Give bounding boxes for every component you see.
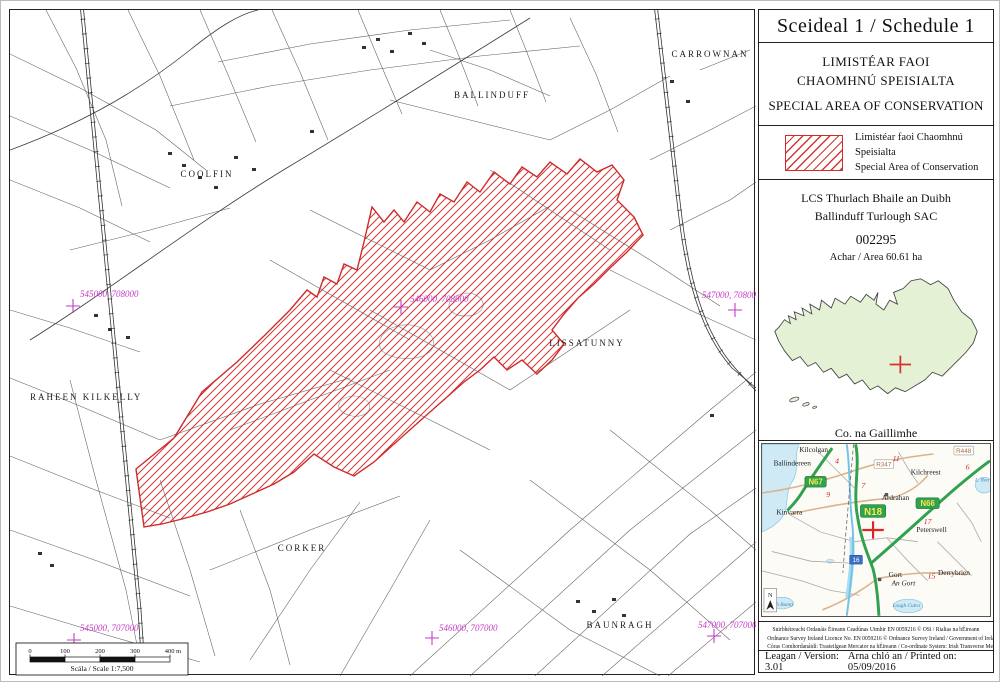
copyright-line-irish: Suirbhéireacht Ordanáis Éireann Ceadúnas… [767,626,985,635]
county-locator-map [767,271,986,422]
town-label: Peterswell [916,525,946,534]
designation-irish-line1: LIMISTÉAR FAOI [759,53,993,72]
site-section: LCS Thurlach Bhaile an Duibh Ballinduff … [758,179,994,441]
junction-16: 16 [853,557,861,564]
placename: BAUNRAGH [586,620,653,630]
town-label-gort: Gort [889,570,902,579]
inset-map-section: N67 N18 N66 R347 R448 16 4 9 7 [758,440,994,622]
coord-label: 546000, 708000 [410,294,469,304]
road-shield-n18: N18 [864,507,882,518]
railway-west [80,10,145,670]
designation-english: SPECIAL AREA OF CONSERVATION [759,98,993,114]
county-name-irish: Co. na Gaillimhe [759,424,993,441]
site-area: Achar / Area 60.61 ha [759,252,993,263]
placename: RAHEEN KILKELLY [30,392,142,402]
town-label: Kinvarra [776,507,803,516]
distance: 11 [893,454,900,463]
scale-tick: 100 [60,648,70,655]
map-sheet: COOLFIN BALLINDUFF CARROWNAN LISSATUNNY … [0,0,1000,682]
scale-tick: 200 [95,648,105,655]
galway-county-outline [774,279,976,394]
site-code: 002295 [759,232,993,248]
scale-tick: 300 [130,648,140,655]
distance: 6 [966,463,970,472]
designation-section: LIMISTÉAR FAOI CHAOMHNÚ SPEISIALTA SPECI… [758,42,994,126]
scale-tick: 400 m [165,648,181,655]
printed-label: Arna chló an / Printed on: 05/09/2016 [848,651,987,673]
coord-label: 546000, 707000 [439,623,498,633]
placename: LISSATUNNY [549,338,625,348]
distance: 7 [861,481,866,490]
town-label: Kilcolgan [799,445,828,454]
town-label-angort: An Gort [891,579,917,588]
main-map-panel: COOLFIN BALLINDUFF CARROWNAN LISSATUNNY … [9,9,755,675]
schedule-title: Sceideal 1 / Schedule 1 [777,15,975,38]
copyright-line-english: Ordnance Survey Ireland Licence No. EN 0… [767,635,985,644]
grid-cross [728,303,742,317]
legend-label-irish: Limistéar faoi Chaomhnú Speisialta [855,130,993,160]
scale-tick: 0 [28,648,31,655]
railway-east [654,10,756,391]
placename: CARROWNAN [671,49,748,59]
placename: COOLFIN [180,169,233,179]
water-label: Lough Cutra [891,603,920,609]
scale-bar: 0 100 200 300 400 m Scála / Scale 1:7,50… [16,643,188,675]
town-label: Derrybrien [938,568,970,577]
sac-hatch-swatch [785,135,843,171]
town-label: Kilchreest [911,467,941,476]
placename: CORKER [278,543,327,553]
inset-site-cross [862,521,883,539]
coordinate-system-line: Córas Comhordanáidí: Trasteilgean Mercat… [767,643,985,651]
copyright-section: Suirbhéireacht Ordanáis Éireann Ceadúnas… [758,621,994,651]
distance: 9 [826,490,830,499]
water-label: L. Rea [974,477,989,483]
coord-label: 547000, 707000 [698,620,756,630]
distance: 15 [928,572,936,581]
version-section: Leagan / Version: 3.01 Arna chló an / Pr… [758,650,994,673]
north-arrow: N [764,588,777,611]
svg-text:N: N [768,592,773,599]
version-label: Leagan / Version: 3.01 [765,651,848,673]
legend-section: Limistéar faoi Chaomhnú Speisialta Speci… [758,125,994,180]
scale-label: Scála / Scale 1:7,500 [71,664,134,673]
schedule-title-section: Sceideal 1 / Schedule 1 [758,9,994,43]
inset-river [847,444,853,615]
site-name-irish: LCS Thurlach Bhaile an Duibh [759,189,993,207]
inset-road-map: N67 N18 N66 R347 R448 16 4 9 7 [761,443,991,617]
coord-label: 545000, 707000 [80,623,139,633]
coord-label: 547000, 708000 [702,290,756,300]
site-name-english: Ballinduff Turlough SAC [759,207,993,225]
designation-irish-line2: CHAOMHNÚ SPEISIALTA [759,72,993,91]
aran-islands [789,396,817,409]
town-label: Ballindereen [774,459,812,468]
grid-cross [66,299,80,313]
road-shield-n67: N67 [808,478,822,487]
grid-cross [425,631,439,645]
town-label: Ardrahan [882,493,910,502]
road-shield-n66: N66 [921,499,936,508]
distance: 4 [835,457,839,466]
road-shield-r448: R448 [956,448,972,455]
legend-label-english: Special Area of Conservation [855,160,993,175]
schedule-panel: Sceideal 1 / Schedule 1 LIMISTÉAR FAOI C… [758,9,994,673]
placename: BALLINDUFF [454,90,530,100]
coord-label: 545000, 708000 [80,289,139,299]
road-shield-r347: R347 [876,462,892,469]
grid-cross [707,629,721,643]
main-map-svg: COOLFIN BALLINDUFF CARROWNAN LISSATUNNY … [10,10,756,676]
